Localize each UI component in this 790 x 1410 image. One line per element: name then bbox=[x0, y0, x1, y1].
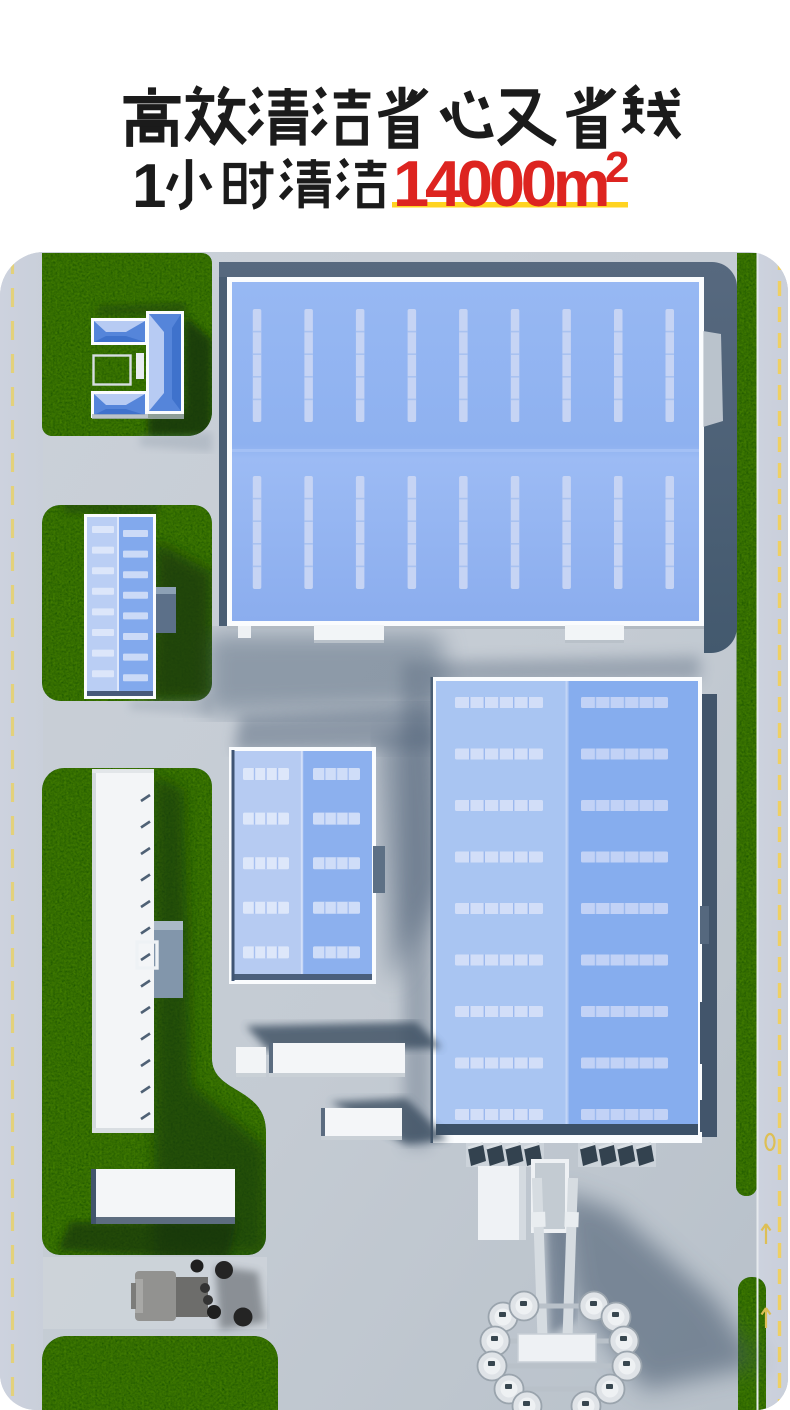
svg-text:1: 1 bbox=[132, 152, 166, 221]
svg-text:2: 2 bbox=[605, 143, 629, 192]
svg-text:14000m: 14000m bbox=[393, 147, 607, 220]
